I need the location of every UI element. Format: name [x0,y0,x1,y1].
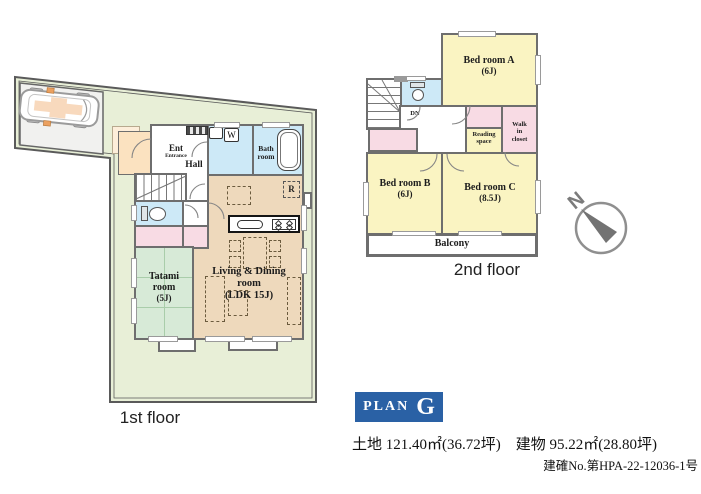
window-mark [301,205,307,231]
window-mark [148,336,178,342]
corridor-1f [182,200,209,227]
tatami-mat-line [136,307,192,308]
window-mark [392,231,436,236]
bed-a-text: Bed room A [444,55,534,66]
closet-2f-stairs [368,128,418,152]
toilet-tank-1f [141,206,148,221]
label-bathroom: Bath room [253,145,279,162]
refrigerator-label: R [288,184,295,194]
ldk-text-2: room [198,278,300,290]
window-mark [205,336,245,342]
label-dn: DN [405,110,425,117]
stairs-1f [134,173,187,202]
window-mark [252,336,292,342]
toilet-bowl-1f [149,207,166,221]
dn-text: DN [405,110,425,117]
bed-c-text: Bed room C [446,182,534,193]
caption-2nd-floor: 2nd floor [432,260,542,280]
caption-1st-floor: 1st floor [95,408,205,428]
caption-1st-floor-text: 1st floor [120,408,180,427]
area-summary-text: 土地 121.40㎡(36.72坪) 建物 95.22㎡(28.80坪) [352,437,657,453]
label-balcony: Balcony [402,238,502,249]
label-walk-in-closet: Walk in closet [504,121,535,143]
vanity-sink [209,127,223,139]
ldk-size: (LDK 15J) [198,290,300,302]
building-permit-number: 建確No.第HPA-22-12036-1号 [352,455,698,474]
label-bed-a: Bed room A (6J) [444,55,534,76]
wic-text-2: in [504,128,535,135]
window-mark [301,248,307,274]
label-bed-b: Bed room B (6J) [369,178,441,199]
bed-b-text: Bed room B [369,178,441,189]
tatami-size: (5J) [136,293,192,303]
burner [275,224,282,231]
floor-plan-page: W R Ent Entrance Hall Bath room [0,0,701,494]
washer-label: W [227,130,236,140]
bath-text-2: room [253,153,279,161]
hall-text: Hall [176,160,212,171]
kitchen-counter [228,215,300,233]
window-mark [535,180,541,214]
label-ent: Ent Entrance [155,143,197,159]
plan-badge-letter: G [416,395,435,419]
label-tatami: Tatami room (5J) [136,271,192,303]
plan-badge: PLAN G [355,392,443,422]
shoe-cabinet [186,126,208,135]
cupboard [227,186,251,205]
label-hall: Hall [176,160,212,171]
compass-needle [581,209,617,243]
dining-table [243,237,267,269]
bed-b-size: (6J) [369,189,441,199]
bed-c-size: (8.5J) [446,193,534,203]
ldk-text-1: Living & Dining [198,266,300,278]
label-reading-space: Reading space [466,131,502,146]
area-summary: 土地 121.40㎡(36.72坪) 建物 95.22㎡(28.80坪) [352,433,698,454]
bed-a-size: (6J) [444,66,534,76]
toilet-bowl-2f [412,89,424,101]
dining-chair [269,240,281,252]
entrance-porch [118,131,152,175]
tatami-text-1: Tatami [136,271,192,282]
closet-2f-reading [465,105,503,129]
window-mark [214,122,240,128]
washing-machine: W [224,128,239,142]
window-mark [406,76,426,81]
window-mark [458,231,502,236]
compass: N [556,183,636,263]
window-mark [535,55,541,85]
ent-sub-text: Entrance [155,153,197,159]
balcony-text: Balcony [402,238,502,249]
kitchen-stove [272,219,296,230]
ent-text: Ent [155,143,197,153]
burner [286,224,293,231]
reading-text-1: Reading [466,131,502,138]
stairs-2f [366,78,402,130]
window-mark [262,122,290,128]
plan-badge-label: PLAN [363,399,409,415]
toilet-tank-2f [410,82,425,88]
wic-text-1: Walk [504,121,535,128]
window-mark [131,205,137,221]
wic-text-3: closet [504,136,535,143]
kitchen-sink [237,220,263,229]
building-permit-text: 建確No.第HPA-22-12036-1号 [543,459,698,473]
label-bed-c: Bed room C (8.5J) [446,182,534,203]
label-ldk: Living & Dining room (LDK 15J) [198,266,300,301]
dining-chair [229,240,241,252]
caption-2nd-floor-text: 2nd floor [454,260,520,279]
reading-text-2: space [466,138,502,145]
refrigerator-space: R [283,181,300,198]
bathtub [277,129,301,171]
window-mark [458,31,496,37]
tatami-text-2: room [136,282,192,293]
